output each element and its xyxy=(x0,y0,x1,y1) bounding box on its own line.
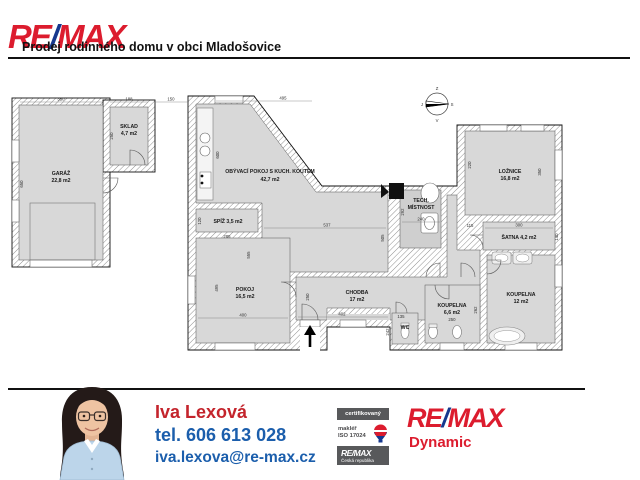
svg-text:4,7 m2: 4,7 m2 xyxy=(121,131,137,137)
svg-text:285: 285 xyxy=(223,234,231,239)
svg-text:17 m2: 17 m2 xyxy=(350,297,365,303)
svg-text:495: 495 xyxy=(214,284,219,292)
svg-text:S: S xyxy=(451,102,454,107)
svg-text:22,8 m2: 22,8 m2 xyxy=(51,178,70,184)
flyer-page: RE/MAX Prodej rodinného domu v obci Mlad… xyxy=(0,0,640,480)
svg-text:650: 650 xyxy=(19,180,24,188)
svg-text:292: 292 xyxy=(400,208,405,216)
svg-text:537: 537 xyxy=(323,223,331,228)
svg-text:140: 140 xyxy=(554,233,559,241)
svg-text:TECH.: TECH. xyxy=(413,198,429,204)
svg-text:300: 300 xyxy=(515,223,523,228)
cert-remax: RE/MAX xyxy=(341,448,385,458)
cooktop-icon xyxy=(200,133,210,143)
certification-badge: certifikovaný makléř ISO 17024 RE/MAX Če… xyxy=(337,408,389,465)
svg-text:CHODBA: CHODBA xyxy=(346,290,369,296)
svg-text:KOUPELNA: KOUPELNA xyxy=(437,303,466,309)
svg-text:LOŽNICE: LOŽNICE xyxy=(499,167,522,175)
agent-email: iva.lexova@re-max.cz xyxy=(155,447,316,468)
header-divider xyxy=(8,57,630,59)
brand-re: RE xyxy=(407,403,442,433)
svg-text:OBÝVACÍ POKOJ S KUCH. KOUTEM: OBÝVACÍ POKOJ S KUCH. KOUTEM xyxy=(225,167,315,175)
svg-text:242: 242 xyxy=(385,328,390,336)
svg-text:150: 150 xyxy=(167,97,175,102)
contact-block: Iva Lexová tel. 606 613 028 iva.lexova@r… xyxy=(155,401,316,468)
page-title: Prodej rodinného domu v obci Mladošovice xyxy=(22,40,281,54)
cert-makler: makléř xyxy=(338,426,366,433)
svg-text:600: 600 xyxy=(215,151,220,159)
cert-iso: ISO 17024 xyxy=(338,433,366,440)
chimney xyxy=(389,183,404,199)
svg-text:505: 505 xyxy=(380,234,385,242)
svg-text:402: 402 xyxy=(338,312,346,317)
svg-text:115: 115 xyxy=(467,223,474,228)
compass-icon: Z S V J xyxy=(421,86,454,123)
cert-row-certified: certifikovaný xyxy=(337,408,389,420)
svg-text:495: 495 xyxy=(279,96,287,101)
svg-text:250: 250 xyxy=(109,132,114,140)
balloon-icon xyxy=(373,424,388,443)
svg-text:120: 120 xyxy=(197,217,202,225)
cert-country: Česká republika xyxy=(341,458,385,463)
svg-text:J: J xyxy=(421,102,423,107)
svg-text:6,6 m2: 6,6 m2 xyxy=(444,310,460,316)
svg-text:350: 350 xyxy=(57,97,65,102)
svg-text:555: 555 xyxy=(246,251,251,259)
svg-text:262: 262 xyxy=(473,306,478,314)
svg-text:135: 135 xyxy=(397,314,405,319)
svg-text:240: 240 xyxy=(417,217,425,222)
office-name: Dynamic xyxy=(409,434,503,451)
cert-row-iso: makléř ISO 17024 xyxy=(337,422,389,445)
svg-text:MÍSTNOST: MÍSTNOST xyxy=(408,203,436,211)
svg-text:12 m2: 12 m2 xyxy=(514,299,529,305)
svg-text:V: V xyxy=(436,118,439,123)
agent-name: Iva Lexová xyxy=(155,401,316,424)
svg-text:KOUPELNA: KOUPELNA xyxy=(506,292,535,298)
office-logo: RE/MAX Dynamic xyxy=(407,405,503,451)
svg-text:SKLAD: SKLAD xyxy=(120,124,138,130)
svg-text:SPÍŽ 3,5 m2: SPÍŽ 3,5 m2 xyxy=(213,217,242,225)
cert-row-remax: RE/MAX Česká republika xyxy=(337,446,389,465)
svg-text:GARÁŽ: GARÁŽ xyxy=(52,169,71,177)
svg-text:188: 188 xyxy=(125,97,133,102)
svg-text:WC: WC xyxy=(401,325,410,331)
floorplan: Z S V J GARÁŽ 22,8 m2 SKLAD 4,7 m2 OBÝVA… xyxy=(0,80,640,382)
agent-photo xyxy=(48,383,136,480)
svg-text:16,8 m2: 16,8 m2 xyxy=(500,176,519,182)
agent-phone: tel. 606 613 028 xyxy=(155,424,316,447)
svg-text:350: 350 xyxy=(537,168,542,176)
bidet-icon xyxy=(453,326,462,339)
brand-max: MAX xyxy=(448,403,504,433)
svg-text:ŠATNA 4,2 m2: ŠATNA 4,2 m2 xyxy=(502,233,537,241)
svg-text:400: 400 xyxy=(239,313,247,318)
kitchen-sink xyxy=(200,172,211,188)
svg-text:220: 220 xyxy=(467,161,472,169)
svg-text:Z: Z xyxy=(436,86,439,91)
svg-text:POKOJ: POKOJ xyxy=(236,287,254,293)
cooktop-icon xyxy=(200,146,210,156)
svg-text:250: 250 xyxy=(448,317,456,322)
svg-text:16,5 m2: 16,5 m2 xyxy=(235,294,254,300)
svg-text:250: 250 xyxy=(305,293,310,301)
svg-text:42,7 m2: 42,7 m2 xyxy=(260,177,279,183)
